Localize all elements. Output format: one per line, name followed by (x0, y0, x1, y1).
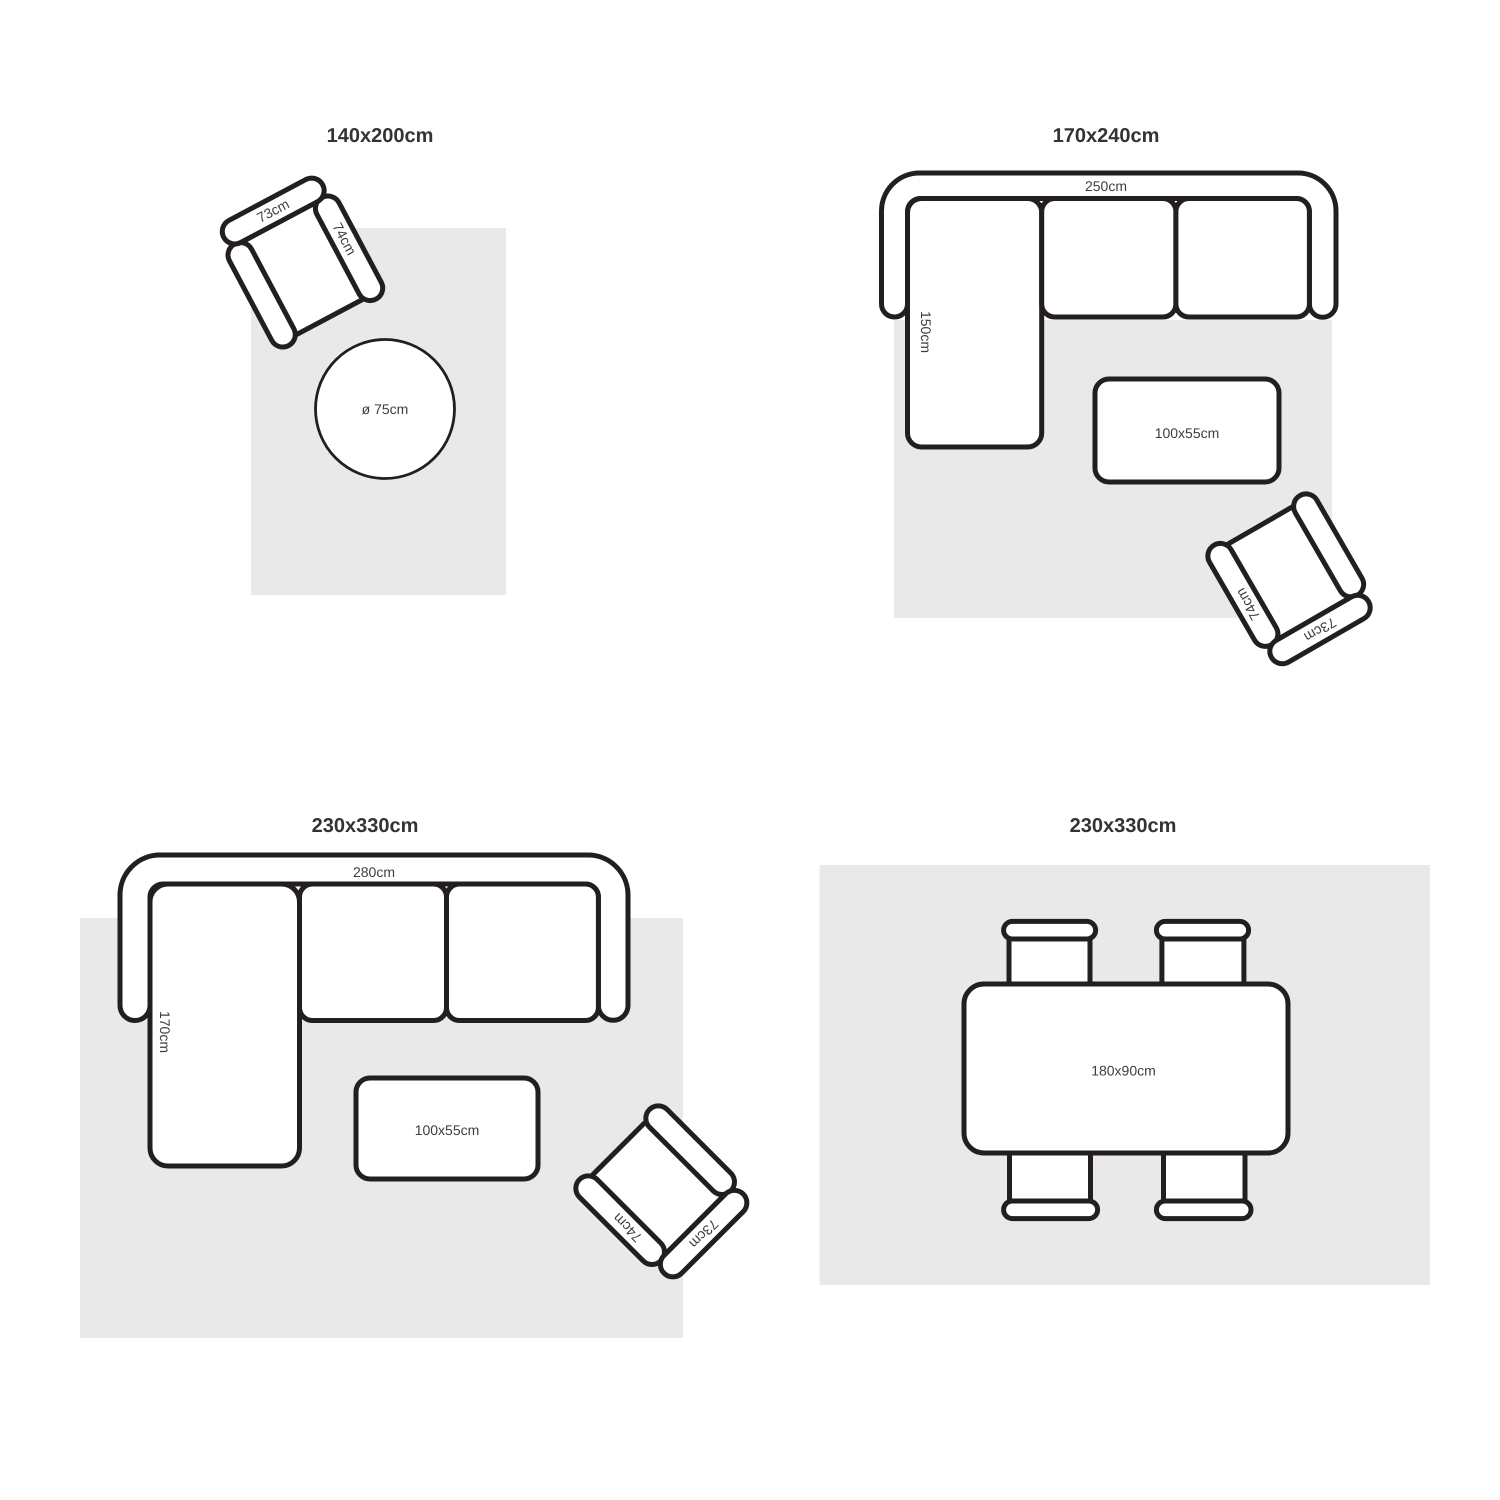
svg-text:250cm: 250cm (1085, 178, 1127, 194)
svg-text:230x330cm: 230x330cm (312, 815, 419, 837)
svg-text:230x330cm: 230x330cm (1070, 815, 1177, 837)
svg-text:170cm: 170cm (157, 1011, 173, 1053)
svg-text:100x55cm: 100x55cm (415, 1122, 480, 1138)
svg-text:170x240cm: 170x240cm (1053, 125, 1160, 147)
svg-text:140x200cm: 140x200cm (327, 125, 434, 147)
svg-text:180x90cm: 180x90cm (1091, 1063, 1156, 1079)
svg-text:280cm: 280cm (353, 864, 395, 880)
svg-text:ø 75cm: ø 75cm (362, 401, 409, 417)
svg-text:150cm: 150cm (918, 311, 934, 353)
svg-text:100x55cm: 100x55cm (1155, 425, 1220, 441)
